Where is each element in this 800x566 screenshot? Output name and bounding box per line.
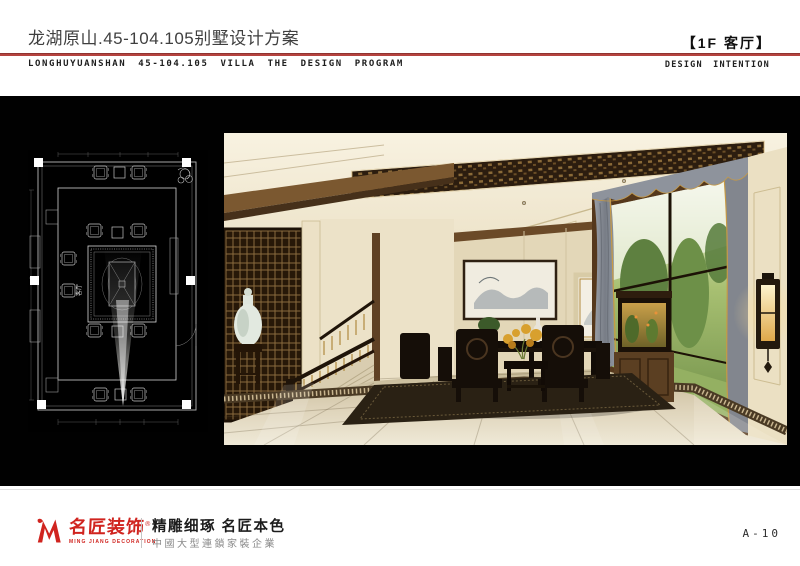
page-title: 龙湖原山.45-104.105别墅设计方案: [28, 24, 299, 49]
mingjiang-logo: 名匠装饰® MING JIANG DECORATION: [36, 515, 156, 545]
logo-text: 名匠装饰®: [68, 515, 157, 537]
room-tag: 【1F 客厅】: [682, 33, 772, 53]
header-rule: [0, 53, 800, 56]
company-line: 中國大型連鎖家裝企業: [152, 535, 277, 550]
footer-vertical-divider: [141, 518, 142, 548]
footer-divider-line: [0, 489, 800, 490]
interior-rendering: [224, 133, 787, 445]
page-subtitle-en: LONGHUYUANSHAN 45-104.105 VILLA THE DESI…: [28, 59, 404, 69]
page-number: A-10: [743, 527, 782, 540]
floor-plan-drawing: 客厅: [28, 150, 208, 432]
content-panel: 客厅: [0, 96, 800, 486]
design-intention-label: DESIGN INTENTION: [665, 60, 770, 70]
registered-mark: ®: [145, 521, 152, 528]
ink-painting: [464, 261, 556, 319]
plan-room-label: 客厅: [75, 284, 83, 296]
logo-subtext: MING JIANG DECORATION: [69, 539, 156, 545]
slogan: 精雕细琢 名匠本色: [152, 515, 286, 536]
presentation-board: 龙湖原山.45-104.105别墅设计方案 LONGHUYUANSHAN 45-…: [0, 0, 800, 566]
logo-cn-text: 名匠装饰: [68, 517, 145, 537]
logo-m-icon: [36, 517, 66, 545]
